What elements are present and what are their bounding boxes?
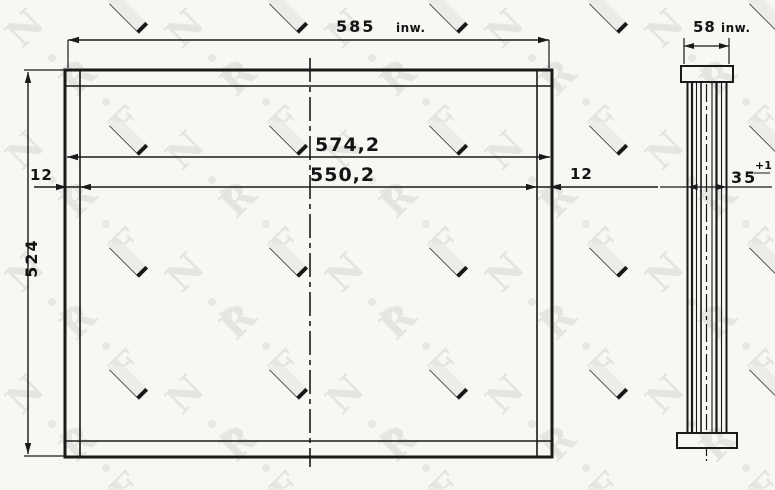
dim-label-550-2: 550,2 xyxy=(310,164,375,186)
dim-label-35: 35 xyxy=(731,168,757,187)
dim-suffix-inw: inw. xyxy=(396,21,426,35)
dim-tolerance-plus1: +1 xyxy=(755,159,772,172)
dim-label-585: 585 xyxy=(336,17,375,36)
watermark-layer xyxy=(0,0,775,490)
dim-label-height: 524 xyxy=(22,238,41,277)
dim-suffix-inw-side: inw. xyxy=(721,21,751,35)
dim-label-12-right: 12 xyxy=(570,165,593,183)
dim-label-12-left: 12 xyxy=(30,166,53,184)
scanned-technical-drawing-page: N R F xyxy=(0,0,775,490)
dim-label-574-2: 574,2 xyxy=(315,134,380,156)
radiator-core-technical-drawing: N R F xyxy=(0,0,775,490)
dim-label-58: 58 xyxy=(693,18,716,36)
